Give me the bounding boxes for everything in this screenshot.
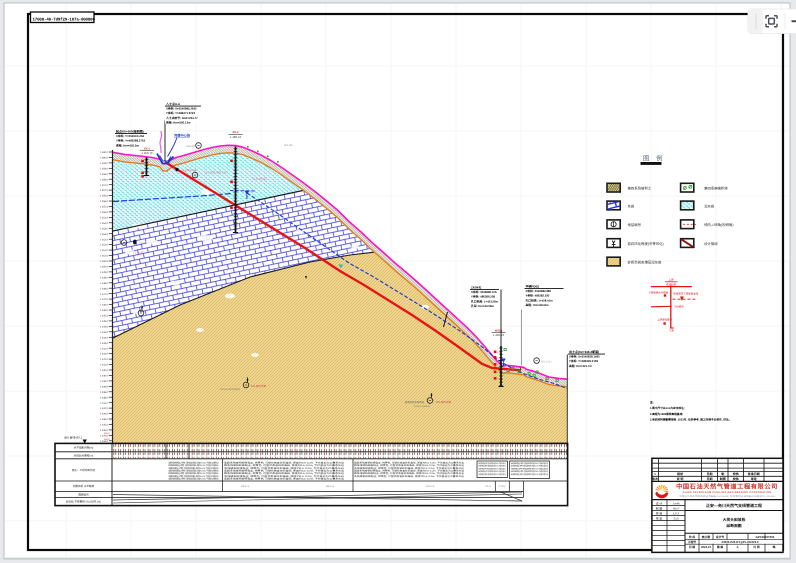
svg-text:1 453.0: 1 453.0 [100, 233, 109, 236]
svg-text:砂质页岩夹薄层泥灰岩: 砂质页岩夹薄层泥灰岩 [628, 260, 663, 264]
svg-text:四系残坡积粉质黏土, 褐黄色, 可塑状态含碎石角砾, 厚度约: 四系残坡积粉质黏土, 褐黄色, 可塑状态含碎石角砾, 厚度约0.5-3.2m, … [479, 473, 506, 476]
svg-text:1 456.0: 1 456.0 [100, 195, 109, 198]
svg-text:1.图中尺寸以mm为单位标注;: 1.图中尺寸以mm为单位标注; [650, 406, 685, 410]
svg-text:1 486.13: 1 486.13 [230, 135, 241, 139]
svg-text:X坐标: Y=3546XX.264: X坐标: Y=3546XX.264 [116, 134, 145, 138]
svg-text:高程: Hm=421.7m: 高程: Hm=421.7m [569, 364, 592, 368]
svg-text:1 449.0: 1 449.0 [100, 276, 109, 279]
svg-text:1 456.0: 1 456.0 [100, 200, 109, 203]
svg-text:系残坡积粉质黏土, 褐黄色, 可塑状态含碎石角砾, 厚度约0: 系残坡积粉质黏土, 褐黄色, 可塑状态含碎石角砾, 厚度约0.5-3.2m, 下… [354, 475, 464, 478]
svg-text:平硐PD02: 平硐PD02 [526, 285, 540, 289]
svg-text:批准日期: 批准日期 [748, 472, 760, 476]
svg-text:图 例: 图 例 [643, 155, 665, 163]
svg-text:孔口标高: 1+423.56m: 孔口标高: 1+423.56m [471, 299, 499, 303]
svg-text:1 450.0: 1 450.0 [100, 260, 109, 263]
svg-text:Y坐标: Y=486271.9723: Y坐标: Y=486271.9723 [166, 111, 195, 115]
svg-text:7.9 m: 7.9 m [485, 485, 491, 488]
svg-text:制图: 制图 [720, 477, 726, 481]
svg-text:1 440.0: 1 440.0 [100, 375, 109, 378]
svg-text:1 457.0: 1 457.0 [100, 189, 109, 192]
svg-text:(7.1)2y: (7.1)2y [498, 485, 506, 488]
svg-text:工程设计综合甲级资质证书编号:A123045C 体系集团证号: 工程设计综合甲级资质证书编号:A123045C 体系集团证号中国石油管道G1.0… [679, 495, 776, 498]
svg-text:1 460.0: 1 460.0 [100, 157, 109, 160]
svg-text:围岩级别: 围岩级别 [78, 493, 89, 497]
svg-text:1 451.0: 1 451.0 [100, 249, 109, 252]
svg-text:1 446.0: 1 446.0 [100, 309, 109, 312]
svg-text:分段起点里程(m): 分段起点里程(m) [74, 453, 94, 457]
svg-text:系残坡积粉质黏土, 褐黄色, 可塑状态含碎石角砾, 厚度约0: 系残坡积粉质黏土, 褐黄色, 可塑状态含碎石角砾, 厚度约0.5-3.2m, 下… [479, 467, 506, 470]
svg-text:601-604: 601-604 [186, 145, 196, 148]
svg-text:工程号: 工程号 [688, 540, 697, 544]
svg-text:1 454.0: 1 454.0 [100, 222, 109, 225]
svg-text:1 447.0: 1 447.0 [100, 298, 109, 301]
svg-text:校核: 校核 [733, 477, 739, 481]
svg-text:1 435.0: 1 435.0 [100, 429, 109, 432]
svg-text:高程: Hm=556.13m: 高程: Hm=556.13m [166, 120, 191, 124]
svg-text:第四系残坡积粉质黏土, 褐黄色, 可塑状态含碎石角砾, 厚度: 第四系残坡积粉质黏土, 褐黄色, 可塑状态含碎石角砾, 厚度约0.5-3.2m,… [511, 470, 548, 473]
svg-text:版次: 版次 [652, 477, 659, 481]
svg-text:第四系残坡积粉质黏土, 褐黄色, 可塑状态含碎石角砾, 厚度: 第四系残坡积粉质黏土, 褐黄色, 可塑状态含碎石角砾, 厚度约0.5-3.2m,… [354, 469, 464, 472]
svg-text:系残坡积粉质黏土, 褐黄色, 可塑状态含碎石角砾, 厚度约0: 系残坡积粉质黏土, 褐黄色, 可塑状态含碎石角砾, 厚度约0.5-3.2m, 下… [169, 467, 219, 470]
svg-text:1 438.0: 1 438.0 [100, 396, 109, 399]
svg-text:3.地质资料据勘察报告_2023年, 仅供参考, 施工时请予: 3.地质资料据勘察报告_2023年, 仅供参考, 施工时请予以核实, 详见。 [650, 418, 731, 422]
svg-text:第四系残坡积粉质黏土, 褐黄色, 可塑状态含碎石角砾, 厚度: 第四系残坡积粉质黏土, 褐黄色, 可塑状态含碎石角砾, 厚度约0.5-3.2m,… [169, 462, 219, 465]
svg-text:泥灰岩: 泥灰岩 [704, 204, 715, 208]
svg-text:1 445.0: 1 445.0 [100, 315, 109, 318]
svg-text:1 441.0: 1 441.0 [100, 364, 109, 367]
svg-text:四系残坡积粉质黏土, 褐黄色, 可塑状态含碎石角砾, 厚度约: 四系残坡积粉质黏土, 褐黄色, 可塑状态含碎石角砾, 厚度约0.5-3.2m, … [169, 464, 219, 467]
svg-text:设计号: 设计号 [716, 535, 725, 539]
svg-text:2023.10: 2023.10 [701, 545, 712, 549]
svg-text:第四系残坡积粉质黏土, 褐黄色, 可塑状态含碎石角砾, 厚度: 第四系残坡积粉质黏土, 褐黄色, 可塑状态含碎石角砾, 厚度约0.5-3.2m,… [479, 462, 506, 465]
svg-text:阶 段: 阶 段 [689, 535, 696, 539]
svg-text:1 436.0: 1 436.0 [100, 413, 109, 416]
svg-text:制: 制 [721, 472, 724, 476]
svg-text:日期: 日期 [706, 472, 712, 476]
svg-text:入土点K2+254: 入土点K2+254 [182, 169, 197, 172]
svg-text:1 447.0: 1 447.0 [100, 293, 109, 296]
svg-text:GPC2023T056: GPC2023T056 [756, 535, 775, 539]
svg-text:(30.2 m): (30.2 m) [326, 485, 335, 488]
svg-text:1 437.0: 1 437.0 [100, 407, 109, 410]
svg-text:水平投影间隔(m): 水平投影间隔(m) [74, 446, 94, 450]
svg-text:1 436.0: 1 436.0 [100, 418, 109, 421]
svg-text:日 期: 日 期 [689, 545, 696, 549]
svg-text:651-1004: 651-1004 [541, 361, 552, 364]
svg-text:砂质页岩夹泥灰岩: 砂质页岩夹泥灰岩 [405, 400, 425, 404]
svg-text:1 453.0: 1 453.0 [100, 227, 109, 230]
svg-text:系残坡积粉质黏土, 褐黄色, 可塑状态含碎石角砾, 厚度约0: 系残坡积粉质黏土, 褐黄色, 可塑状态含碎石角砾, 厚度约0.5-3.2m, 下… [169, 475, 219, 478]
svg-text:高程: Hm=424.8m: 高程: Hm=424.8m [526, 303, 549, 307]
svg-text:1 446.0: 1 446.0 [100, 304, 109, 307]
svg-text:1 445.0: 1 445.0 [100, 320, 109, 323]
svg-text:1 459.0: 1 459.0 [100, 167, 109, 170]
svg-text:L.P.X: L.P.X [672, 511, 680, 515]
svg-text:1 438.0: 1 438.0 [100, 391, 109, 394]
svg-text:455.0: 455.0 [104, 432, 110, 435]
svg-text:第四系残坡积粉质黏土, 褐黄色, 可塑状态含碎石角砾, 厚度: 第四系残坡积粉质黏土, 褐黄色, 可塑状态含碎石角砾, 厚度约0.5-3.2m,… [169, 477, 219, 480]
svg-text:灰岩: 灰岩 [628, 204, 635, 208]
svg-text:Wu F: Wu F [673, 506, 680, 510]
svg-text:1 437.0: 1 437.0 [100, 402, 109, 405]
svg-text:第四系崩坡积体: 第四系崩坡积体 [704, 187, 728, 191]
svg-text:1 452.0: 1 452.0 [100, 238, 109, 241]
svg-text:大坝头斜坡段: 大坝头斜坡段 [722, 517, 746, 522]
svg-text:ZK04+FD0245B26: ZK04+FD0245B26 [220, 388, 241, 391]
svg-text:第四系残坡积粉质黏土, 褐黄色, 可塑状态含碎石角砾, 厚度: 第四系残坡积粉质黏土, 褐黄色, 可塑状态含碎石角砾, 厚度约0.5-3.2m,… [479, 470, 506, 473]
svg-text:(31.6 m): (31.6 m) [426, 485, 435, 488]
svg-text:注:: 注: [650, 401, 654, 405]
svg-text:审 定: 审 定 [656, 516, 663, 520]
svg-text:1 450.0: 1 450.0 [100, 266, 109, 269]
svg-text:第四系残坡积粉质黏土, 褐黄色, 可塑状态含碎石角砾, 厚度: 第四系残坡积粉质黏土, 褐黄色, 可塑状态含碎石角砾, 厚度约0.5-3.2m,… [224, 477, 344, 480]
svg-text:1 440.0: 1 440.0 [100, 369, 109, 372]
svg-text:系残坡积粉质黏土, 褐黄色, 可塑状态含碎石角砾, 厚度约0: 系残坡积粉质黏土, 褐黄色, 可塑状态含碎石角砾, 厚度约0.5-3.2m, 下… [224, 475, 344, 478]
svg-text:1 452.0: 1 452.0 [100, 244, 109, 247]
svg-text:校核: 校核 [733, 472, 739, 476]
svg-text:ZK04+FD45B26: ZK04+FD45B26 [414, 405, 431, 408]
svg-text:1 465.13: 1 465.13 [493, 333, 504, 337]
svg-text:J.m4h: J.m4h [672, 501, 680, 505]
svg-text:中国石油天然气管道工程有限公司: 中国石油天然气管道工程有限公司 [676, 483, 778, 491]
svg-text:2.高程为1985国家高程基准;: 2.高程为1985国家高程基准; [650, 412, 683, 416]
svg-text:上游里程桩号: 上游里程桩号 [657, 317, 673, 321]
svg-text:1 449.0: 1 449.0 [100, 271, 109, 274]
svg-text:地层编号: 地层编号 [628, 223, 642, 227]
svg-text:下游: 下游 [669, 329, 675, 333]
svg-text:制 图: 制 图 [656, 506, 663, 510]
svg-text:1 458.0: 1 458.0 [100, 178, 109, 181]
svg-text:第四系残坡积粉质黏土, 褐黄色, 可塑状态含碎石角砾, 厚度: 第四系残坡积粉质黏土, 褐黄色, 可塑状态含碎石角砾, 厚度约0.5-3.2m,… [511, 462, 548, 465]
svg-text:1 443.0: 1 443.0 [100, 342, 109, 345]
svg-text:W2-中风化带: W2-中风化带 [436, 400, 452, 404]
svg-text:1 444.0: 1 444.0 [100, 326, 109, 329]
svg-text:系残坡积粉质黏土, 褐黄色, 可塑状态含碎石角砾, 厚度约0: 系残坡积粉质黏土, 褐黄色, 可塑状态含碎石角砾, 厚度约0.5-3.2m, 下… [224, 467, 344, 470]
svg-text:入土点A.A: 入土点A.A [166, 102, 181, 106]
svg-text:X坐标: 3546982.476: X坐标: 3546982.476 [471, 290, 497, 294]
svg-text:四系残坡积粉质黏土, 褐黄色, 可塑状态含碎石角砾, 厚度约: 四系残坡积粉质黏土, 褐黄色, 可塑状态含碎石角砾, 厚度约0.5-3.2m, … [224, 472, 344, 475]
svg-text:出土点(K2+946.3断面): 出土点(K2+946.3断面) [569, 350, 599, 354]
svg-text:450.0: 450.0 [104, 438, 110, 441]
svg-text:1 459.0: 1 459.0 [100, 162, 109, 165]
svg-text:第四系残坡积粉质黏土, 褐黄色, 可塑状态含碎石角砾, 厚度: 第四系残坡积粉质黏土, 褐黄色, 可塑状态含碎石角砾, 厚度约0.5-3.2m,… [354, 462, 464, 465]
svg-text:W2-强风化带: W2-强风化带 [251, 384, 267, 388]
svg-text:起讫桩 平整里程 (%) (桩号,(m): 起讫桩 平整里程 (%) (桩号,(m) [66, 500, 101, 504]
svg-text:1 454.0: 1 454.0 [100, 217, 109, 220]
svg-text:1 444.0: 1 444.0 [100, 331, 109, 334]
svg-text:图 幅: 图 幅 [717, 545, 724, 549]
svg-text:四系残坡积粉质黏土, 褐黄色, 可塑状态含碎石角砾, 厚度约: 四系残坡积粉质黏土, 褐黄色, 可塑状态含碎石角砾, 厚度约0.5-3.2m, … [224, 464, 344, 467]
svg-text:下游坡距水平距离: 下游坡距水平距离 [648, 291, 669, 295]
svg-text:X坐标: X=3546985.2642: X坐标: X=3546985.2642 [166, 107, 197, 111]
svg-text:四系残坡积粉质黏土, 褐黄色, 可塑状态含碎石角砾, 厚度约: 四系残坡积粉质黏土, 褐黄色, 可塑状态含碎石角砾, 厚度约0.5-3.2m, … [479, 465, 506, 468]
svg-text:入土点桩号: GA2+254.77: 入土点桩号: GA2+254.77 [165, 116, 198, 120]
svg-text:系残坡积粉质黏土, 褐黄色, 可塑状态含碎石角砾, 厚度约0: 系残坡积粉质黏土, 褐黄色, 可塑状态含碎石角砾, 厚度约0.5-3.2m, 下… [354, 467, 464, 470]
svg-text:正安—务川天然气支线管道工程: 正安—务川天然气支线管道工程 [706, 503, 762, 508]
svg-text:倾向∠倾角(视倾角): 倾向∠倾角(视倾角) [704, 223, 733, 227]
svg-text:Y坐标: Y=486326.2159: Y坐标: Y=486326.2159 [569, 359, 598, 363]
svg-text:X坐标: X=3546828.1483: X坐标: X=3546828.1483 [569, 355, 600, 359]
svg-text:Y坐标: Y=486288.2753: Y坐标: Y=486288.2753 [116, 139, 145, 143]
svg-text:泥 灰 岩(强): 泥 灰 岩(强) [252, 177, 267, 181]
svg-text:说 明: 说 明 [677, 477, 684, 481]
svg-text:1 456.13: 1 456.13 [142, 151, 153, 155]
svg-text:A: A [736, 545, 738, 549]
svg-text:高程: Hm=555.5m: 高程: Hm=555.5m [116, 143, 139, 147]
svg-text:校 核: 校 核 [656, 511, 663, 515]
svg-text:比 例: 比 例 [753, 545, 760, 549]
svg-text:第四系残坡积粉质黏土, 褐黄色, 可塑状态含碎石角砾, 厚度: 第四系残坡积粉质黏土, 褐黄色, 可塑状态含碎石角砾, 厚度约0.5-3.2m,… [224, 462, 344, 465]
svg-text:1 455.0: 1 455.0 [100, 211, 109, 214]
svg-text:第四系残坡积粉质黏土, 褐黄色, 可塑状态含碎石角砾, 厚度: 第四系残坡积粉质黏土, 褐黄色, 可塑状态含碎石角砾, 厚度约0.5-3.2m,… [169, 469, 219, 472]
svg-text:1 442.0: 1 442.0 [100, 347, 109, 350]
svg-text:描述: 描述 [677, 472, 683, 476]
svg-text:第四系残坡积粉质黏土, 褐黄色, 可塑状态含碎石角砾, 厚度: 第四系残坡积粉质黏土, 褐黄色, 可塑状态含碎石角砾, 厚度约0.5-3.2m,… [224, 469, 344, 472]
svg-text:1 455.0: 1 455.0 [100, 206, 109, 209]
svg-text:上游: 上游 [668, 278, 674, 282]
svg-text:(25.6 m): (25.6 m) [241, 485, 250, 488]
svg-text:施工图: 施工图 [702, 535, 711, 539]
svg-text:1 443.0: 1 443.0 [100, 336, 109, 339]
svg-text:1 451.0: 1 451.0 [100, 255, 109, 258]
svg-text:1 442.0: 1 442.0 [100, 353, 109, 356]
svg-text:Y坐标: 486286.258: Y坐标: 486286.258 [471, 295, 495, 299]
svg-text:岩土、工程地质特征: 岩土、工程地质特征 [72, 468, 96, 472]
svg-text:孔口标高: 1+428.41m: 孔口标高: 1+428.41m [526, 298, 554, 302]
svg-text:W2 强风化带上段: W2 强风化带上段 [205, 171, 227, 175]
svg-text:1 460.0: 1 460.0 [100, 151, 109, 154]
svg-text:1 435.0: 1 435.0 [100, 424, 109, 427]
svg-text:河道中心线: 河道中心线 [174, 134, 191, 138]
svg-text:工程桩号: 工程桩号 [674, 305, 685, 309]
svg-text:设计管线: 设计管线 [704, 242, 718, 246]
svg-text:1 448.0: 1 448.0 [100, 287, 109, 290]
svg-text:X坐标: 3546982.885: X坐标: 3546982.885 [526, 289, 552, 293]
svg-text:801-80+: 801-80+ [284, 144, 294, 147]
svg-text:T.z.b: T.z.b [673, 516, 679, 520]
svg-text:孔深: Hm=43.56m: 孔深: Hm=43.56m [471, 304, 494, 308]
svg-text:1 448.0: 1 448.0 [100, 282, 109, 285]
svg-text:1 441.0: 1 441.0 [100, 358, 109, 361]
svg-text:管道埋深下游纵断面线: 管道埋深下游纵断面线 [673, 292, 699, 296]
svg-text:审定: 审定 [751, 477, 757, 481]
svg-text:四系残坡积粉质黏土, 褐黄色, 可塑状态含碎石角砾, 厚度约: 四系残坡积粉质黏土, 褐黄色, 可塑状态含碎石角砾, 厚度约0.5-3.2m, … [511, 465, 548, 468]
svg-text:ZK04孔: ZK04孔 [471, 286, 481, 290]
svg-text:1 457.0: 1 457.0 [100, 184, 109, 187]
svg-text:四系残坡积粉质黏土, 褐黄色, 可塑状态含碎石角砾, 厚度约: 四系残坡积粉质黏土, 褐黄色, 可塑状态含碎石角砾, 厚度约0.5-3.2m, … [511, 473, 548, 476]
svg-text:四系残坡积粉质黏土, 褐黄色, 可塑状态含碎石角砾, 厚度约: 四系残坡积粉质黏土, 褐黄色, 可塑状态含碎石角砾, 厚度约0.5-3.2m, … [354, 464, 464, 467]
svg-text:设 计: 设 计 [656, 501, 663, 505]
svg-text:T2y-1: T2y-1 [139, 242, 146, 245]
svg-text:略: 略 [773, 545, 776, 549]
svg-text:ZK-2: ZK-2 [232, 130, 239, 134]
svg-text:测量高程 水平距离: 测量高程 水平距离 [73, 484, 95, 488]
svg-text:ZK-1: ZK-1 [144, 147, 151, 151]
svg-text:1 439.0: 1 439.0 [100, 385, 109, 388]
svg-text:CHINA PETROLEUM PIPELINE ENGIN: CHINA PETROLEUM PIPELINE ENGINEERING COR… [683, 491, 772, 494]
svg-text:Y坐标: 486282.292: Y坐标: 486282.292 [526, 294, 550, 298]
svg-text:起点K0+000(接前图): 起点K0+000(接前图) [115, 130, 144, 134]
svg-text:四系残坡积粉质黏土, 褐黄色, 可塑状态含碎石角砾, 厚度约: 四系残坡积粉质黏土, 褐黄色, 可塑状态含碎石角砾, 厚度约0.5-3.2m, … [354, 472, 464, 475]
svg-text:系残坡积粉质黏土, 褐黄色, 可塑状态含碎石角砾, 厚度约0: 系残坡积粉质黏土, 褐黄色, 可塑状态含碎石角砾, 厚度约0.5-3.2m, 下… [511, 467, 548, 470]
svg-text:T2 灰 岩: T2 灰 岩 [133, 251, 144, 255]
svg-text:纵断面图: 纵断面图 [726, 523, 741, 528]
svg-text:1 439.0: 1 439.0 [100, 380, 109, 383]
svg-text:坡顶标高: 坡顶标高 [666, 282, 677, 286]
svg-text:1 458.0: 1 458.0 [100, 173, 109, 176]
svg-text:日期: 日期 [706, 477, 712, 481]
svg-text:四系残坡积粉质黏土, 褐黄色, 可塑状态含碎石角砾, 厚度约: 四系残坡积粉质黏土, 褐黄色, 可塑状态含碎石角砾, 厚度约0.5-3.2m, … [169, 472, 219, 475]
svg-text:岩石风化程度(中等风化): 岩石风化程度(中等风化) [628, 242, 664, 246]
svg-text:20000-P20-GY@PL-09-025.0: 20000-P20-GY@PL-09-025.0 [722, 540, 759, 544]
svg-text:第四系残坡积土: 第四系残坡积土 [628, 187, 652, 191]
svg-text:设计管线463.2: 设计管线463.2 [64, 436, 83, 440]
